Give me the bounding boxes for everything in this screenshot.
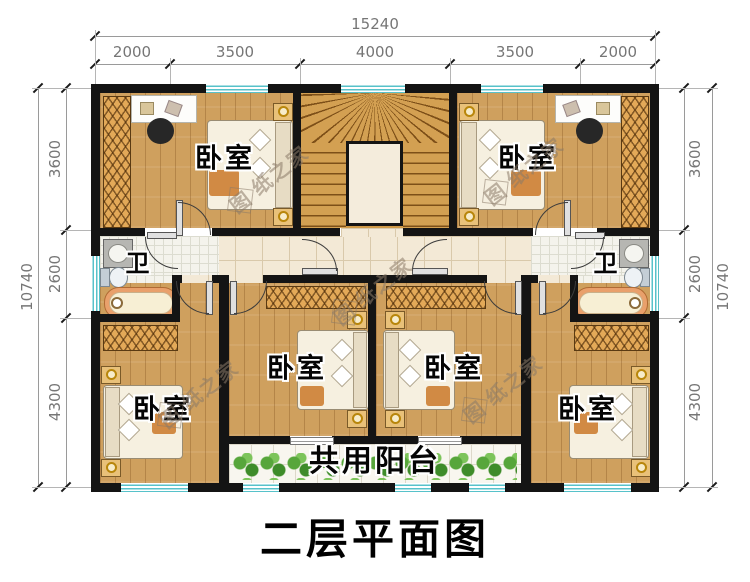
plan-title: 二层平面图 xyxy=(260,506,490,567)
sink-right xyxy=(619,239,649,268)
bed-top-right-headboard xyxy=(461,122,477,208)
bed-bottom-left-headboard xyxy=(105,387,120,457)
label-bedroom-top-left: 卧室 xyxy=(195,137,255,176)
nightstand xyxy=(385,311,405,329)
label-bathroom-right: 卫 xyxy=(594,244,621,279)
nightstand xyxy=(273,103,293,121)
nightstand xyxy=(273,208,293,226)
label-bedroom-bottom-right: 卧室 xyxy=(558,388,618,427)
label-bedroom-mid-left: 卧室 xyxy=(267,347,327,386)
bed-bottom-right-headboard xyxy=(632,387,647,457)
wardrobe-top-left xyxy=(103,96,131,228)
dim-left-total: 10740 xyxy=(18,263,36,311)
window-bath-left xyxy=(91,255,100,312)
nightstand xyxy=(459,208,479,226)
dim-top-seg-1: 2000 xyxy=(113,43,151,61)
window-bottom-left xyxy=(120,483,189,492)
nightstand xyxy=(101,366,121,384)
toilet-left xyxy=(100,266,127,287)
wardrobe-bottom-right xyxy=(574,325,649,351)
stair-landing-bridge xyxy=(341,228,403,237)
stair-landing xyxy=(346,141,403,226)
dim-left-seg-2: 2600 xyxy=(46,255,64,293)
dim-top-total: 15240 xyxy=(351,15,399,33)
dim-left-seg-3: 4300 xyxy=(46,383,64,421)
dim-left-seg-1: 3600 xyxy=(46,140,64,178)
label-bedroom-mid-right: 卧室 xyxy=(424,347,484,386)
window-bath-right xyxy=(650,255,659,312)
dim-top-seg-4: 3500 xyxy=(496,43,534,61)
balcony-rail-1 xyxy=(242,483,280,492)
stair-fan-treads xyxy=(301,93,449,143)
nightstand xyxy=(459,103,479,121)
toilet-right xyxy=(623,266,650,287)
window-top-right xyxy=(480,84,544,93)
dim-right-seg-1: 3600 xyxy=(686,140,704,178)
dim-right-seg-3: 4300 xyxy=(686,383,704,421)
bed-mid-right-headboard xyxy=(385,332,399,408)
balcony-rail-2 xyxy=(394,483,432,492)
dim-top-seg-3: 4000 xyxy=(356,43,394,61)
nightstand xyxy=(347,410,367,428)
chair-top-right xyxy=(576,118,603,144)
dim-right-seg-2: 2600 xyxy=(686,255,704,293)
wardrobe-top-right xyxy=(621,96,649,228)
nightstand xyxy=(385,410,405,428)
wardrobe-bottom-left xyxy=(103,325,178,351)
dim-top-seg-5: 2000 xyxy=(599,43,637,61)
dim-right-total: 10740 xyxy=(714,263,732,311)
dim-top-seg-2: 3500 xyxy=(216,43,254,61)
stair-right-treads xyxy=(403,143,449,228)
label-bathroom-left: 卫 xyxy=(126,244,153,279)
label-balcony: 共用阳台 xyxy=(309,436,441,480)
nightstand xyxy=(631,366,651,384)
nightstand xyxy=(101,459,121,477)
window-bottom-right xyxy=(563,483,632,492)
balcony-rail-3 xyxy=(468,483,506,492)
wardrobe-mid-right xyxy=(386,286,486,309)
floor-plan-canvas: 卧室 卧室 卫 卫 卧室 卧室 卧室 卧室 共用阳台 图纸之家 图纸之家 图纸之… xyxy=(0,0,750,582)
chair-top-left xyxy=(147,118,174,144)
window-top-left xyxy=(205,84,269,93)
window-stairs xyxy=(340,84,406,93)
bed-mid-left-headboard xyxy=(353,332,367,408)
nightstand xyxy=(631,459,651,477)
